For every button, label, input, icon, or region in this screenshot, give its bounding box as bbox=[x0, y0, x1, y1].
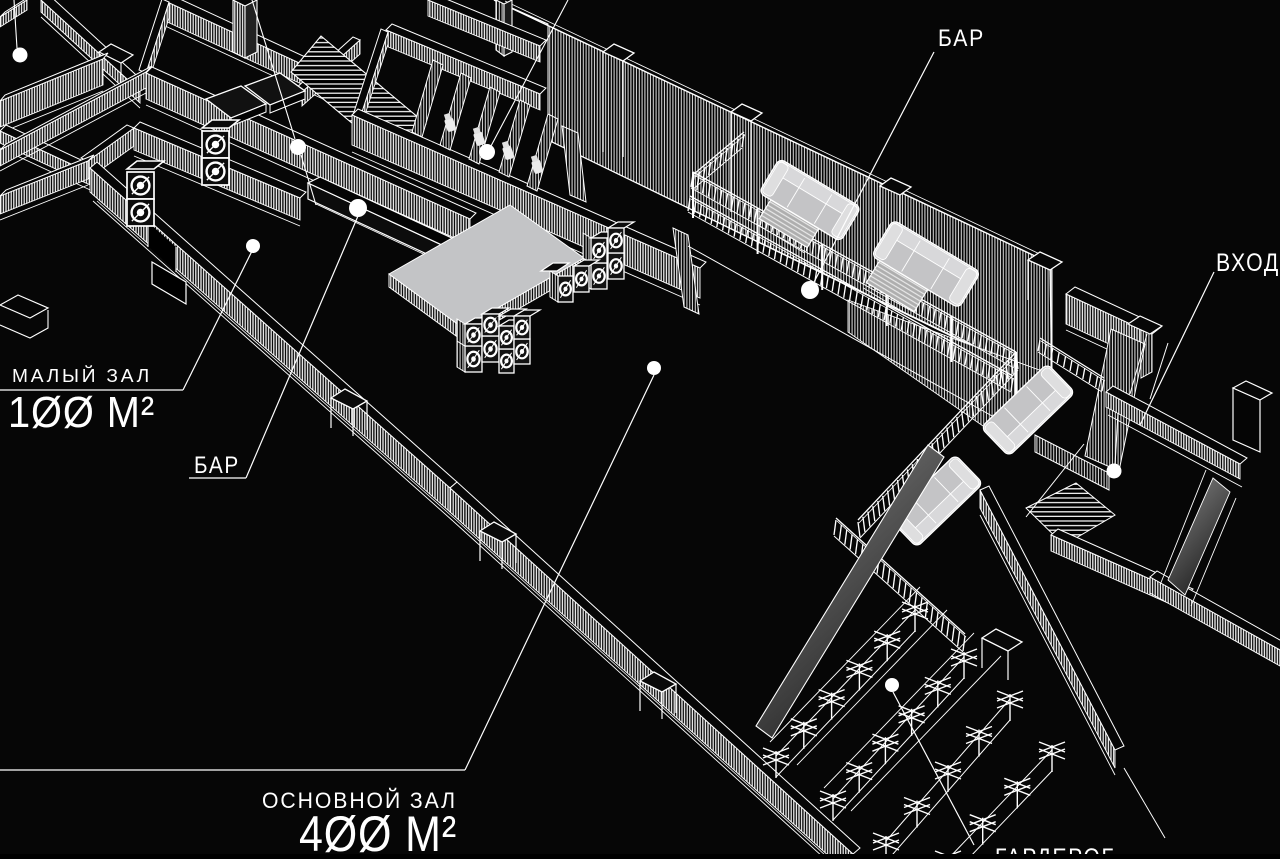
svg-text:БАР: БАР bbox=[194, 452, 240, 479]
svg-text:1ØØ М²: 1ØØ М² bbox=[8, 388, 155, 437]
svg-text:МАЛЫЙ ЗАЛ: МАЛЫЙ ЗАЛ bbox=[12, 365, 152, 386]
svg-text:ГАРДЕРОБ: ГАРДЕРОБ bbox=[995, 844, 1117, 854]
svg-text:4ØØ М²: 4ØØ М² bbox=[299, 806, 457, 854]
svg-text:ВХОД: ВХОД bbox=[1216, 249, 1280, 277]
svg-text:БАР: БАР bbox=[938, 25, 985, 52]
